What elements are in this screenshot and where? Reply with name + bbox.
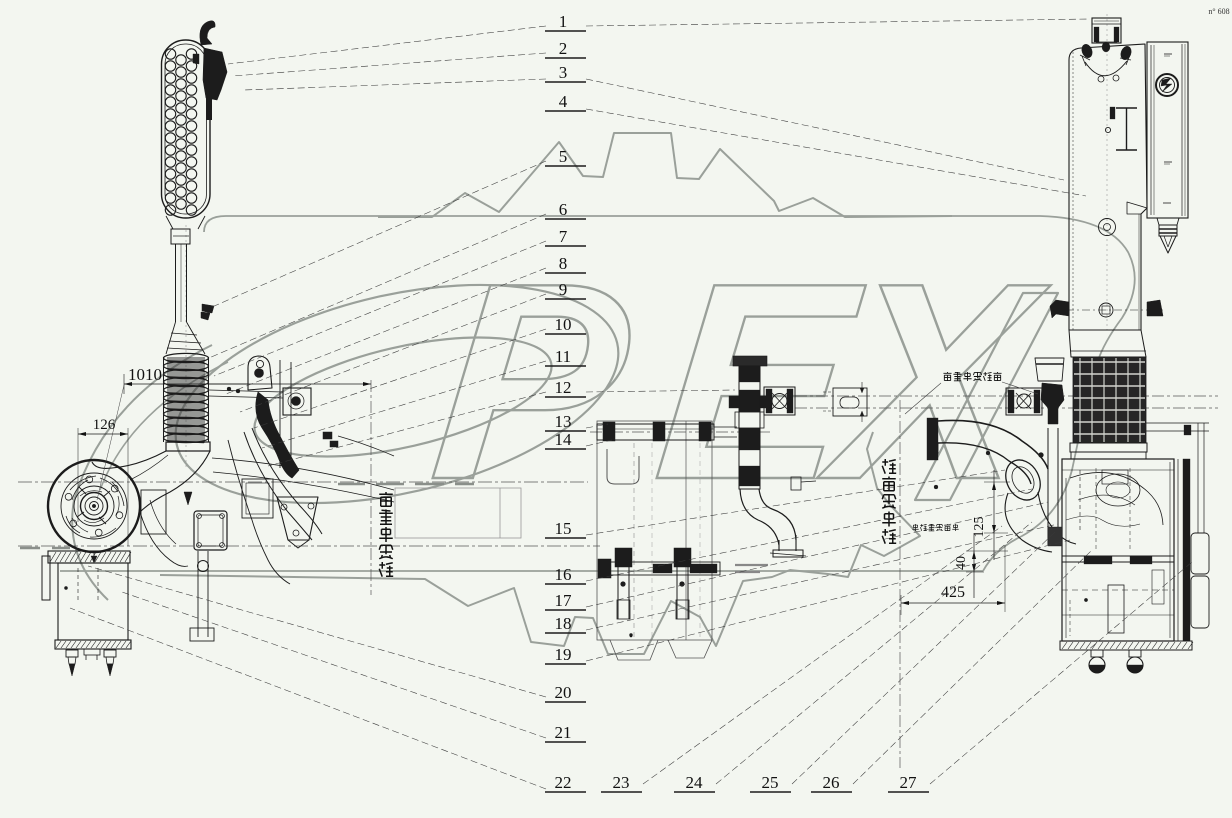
- svg-text:17: 17: [555, 591, 573, 610]
- svg-text:19: 19: [555, 645, 572, 664]
- svg-text:13: 13: [555, 412, 572, 431]
- svg-text:1: 1: [559, 12, 568, 31]
- svg-text:24: 24: [686, 773, 704, 792]
- svg-text:P: P: [421, 226, 642, 538]
- svg-text:3: 3: [559, 63, 568, 82]
- svg-text:5: 5: [559, 147, 568, 166]
- svg-text:22: 22: [555, 773, 572, 792]
- svg-text:6: 6: [559, 200, 568, 219]
- svg-text:4: 4: [559, 92, 568, 111]
- svg-text:15: 15: [555, 519, 572, 538]
- svg-text:21: 21: [555, 723, 572, 742]
- svg-text:126: 126: [93, 417, 116, 433]
- svg-text:1010: 1010: [128, 365, 162, 384]
- svg-text:16: 16: [555, 565, 572, 584]
- svg-text:10: 10: [555, 315, 572, 334]
- svg-text:27: 27: [900, 773, 918, 792]
- svg-text:2: 2: [559, 39, 568, 58]
- svg-text:25: 25: [762, 773, 779, 792]
- svg-text:n° 608: n° 608: [1208, 7, 1229, 16]
- svg-text:26: 26: [823, 773, 840, 792]
- svg-text:7: 7: [559, 227, 568, 246]
- svg-text:425: 425: [941, 584, 965, 601]
- svg-text:9: 9: [559, 280, 568, 299]
- svg-text:40: 40: [954, 556, 969, 570]
- svg-text:8: 8: [559, 254, 568, 273]
- svg-text:14: 14: [555, 430, 573, 449]
- svg-text:18: 18: [555, 614, 572, 633]
- svg-text:23: 23: [613, 773, 630, 792]
- svg-text:11: 11: [555, 347, 571, 366]
- svg-text:20: 20: [555, 683, 572, 702]
- svg-text:12: 12: [555, 378, 572, 397]
